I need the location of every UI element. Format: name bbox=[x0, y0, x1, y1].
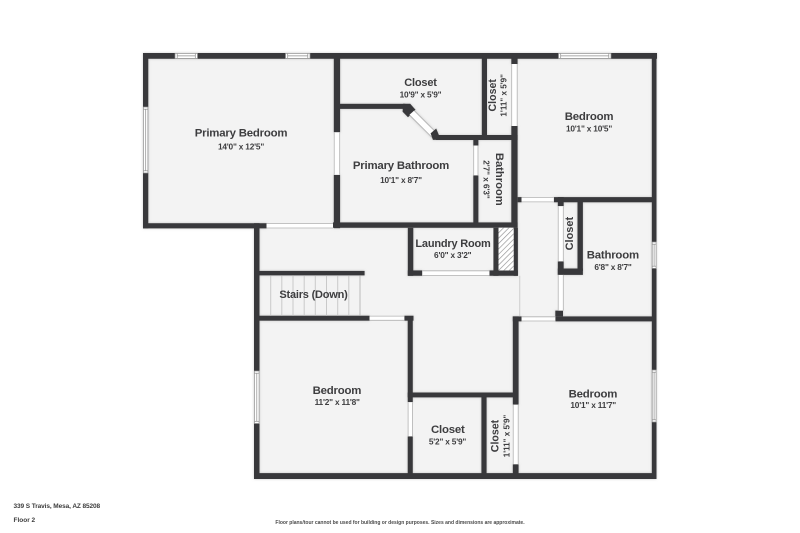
svg-text:Closet: Closet bbox=[489, 419, 501, 452]
svg-text:10'9" x 5'9": 10'9" x 5'9" bbox=[400, 89, 442, 99]
svg-text:Closet: Closet bbox=[404, 77, 437, 89]
svg-text:Primary Bathroom: Primary Bathroom bbox=[353, 160, 449, 172]
svg-text:Laundry Room: Laundry Room bbox=[415, 238, 491, 250]
svg-text:1'11" x 5'9": 1'11" x 5'9" bbox=[502, 415, 511, 458]
svg-text:11'2" x 11'8": 11'2" x 11'8" bbox=[315, 397, 360, 407]
svg-text:6'0" x 3'2": 6'0" x 3'2" bbox=[434, 250, 472, 260]
svg-text:14'0" x 12'5": 14'0" x 12'5" bbox=[218, 141, 264, 151]
svg-text:Bathroom: Bathroom bbox=[587, 250, 639, 262]
svg-text:5'2" x 5'9": 5'2" x 5'9" bbox=[429, 437, 467, 447]
svg-text:Closet: Closet bbox=[431, 424, 465, 436]
svg-text:Closet: Closet bbox=[487, 79, 499, 112]
svg-text:Primary Bedroom: Primary Bedroom bbox=[195, 128, 288, 140]
svg-text:10'1" x 8'7": 10'1" x 8'7" bbox=[380, 175, 422, 185]
svg-text:2'7" x 6'3": 2'7" x 6'3" bbox=[482, 160, 491, 199]
svg-text:Closet: Closet bbox=[564, 216, 576, 250]
svg-text:Bedroom: Bedroom bbox=[313, 385, 362, 397]
svg-text:10'1" x 10'5": 10'1" x 10'5" bbox=[566, 124, 612, 134]
svg-text:Bedroom: Bedroom bbox=[569, 389, 618, 401]
svg-text:Stairs (Down): Stairs (Down) bbox=[279, 289, 348, 301]
svg-text:10'1" x 11'7": 10'1" x 11'7" bbox=[570, 400, 616, 410]
svg-text:Bedroom: Bedroom bbox=[565, 111, 614, 123]
svg-text:Bathroom: Bathroom bbox=[493, 153, 505, 206]
svg-text:6'8" x 8'7": 6'8" x 8'7" bbox=[594, 262, 632, 272]
svg-text:1'11" x 5'9": 1'11" x 5'9" bbox=[500, 74, 509, 117]
